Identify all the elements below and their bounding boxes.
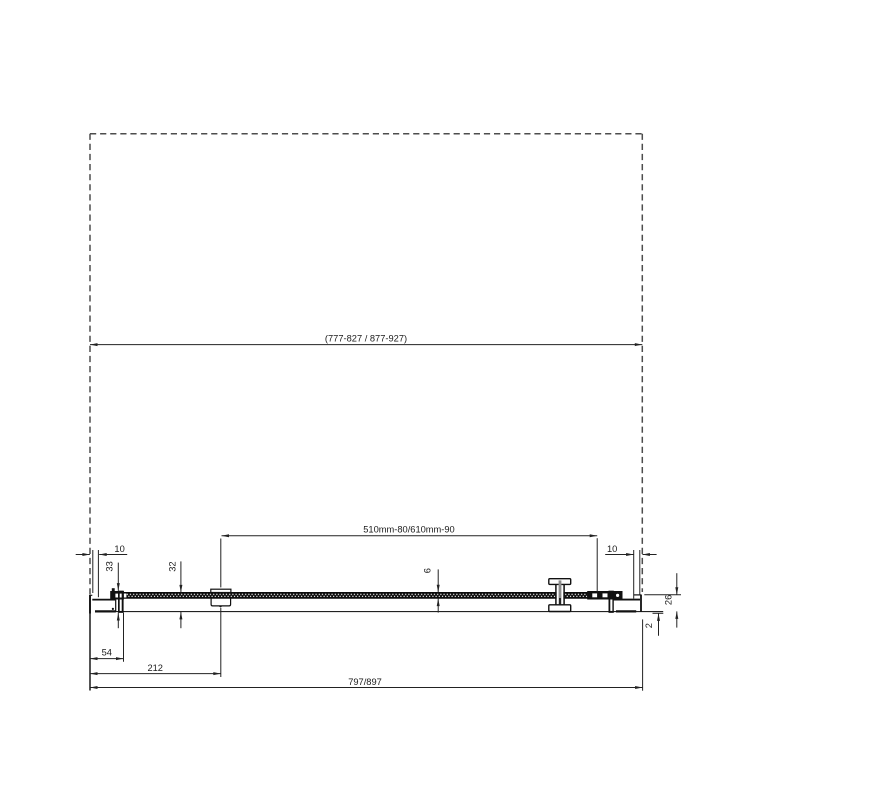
svg-text:797/897: 797/897 xyxy=(348,677,382,687)
svg-text:2: 2 xyxy=(644,623,654,628)
svg-text:33: 33 xyxy=(104,561,114,571)
svg-text:6: 6 xyxy=(423,568,433,573)
svg-text:10: 10 xyxy=(114,544,124,554)
svg-text:32: 32 xyxy=(168,561,178,571)
svg-text:26: 26 xyxy=(663,595,673,605)
svg-text:(777-827 / 877-927): (777-827 / 877-927) xyxy=(325,333,407,343)
svg-text:10: 10 xyxy=(607,544,617,554)
svg-text:54: 54 xyxy=(102,648,112,658)
svg-text:510mm-80/610mm-90: 510mm-80/610mm-90 xyxy=(363,524,454,534)
svg-text:212: 212 xyxy=(147,663,163,673)
